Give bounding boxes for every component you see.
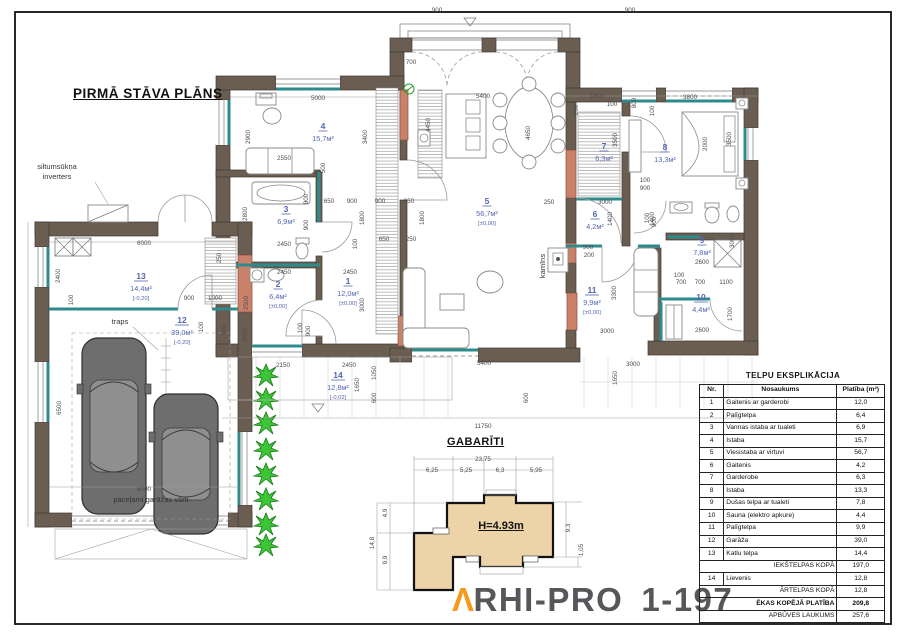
room-explication: TELPU EKSPLIKĀCIJA Nr. Nosaukums Platība… <box>699 371 887 623</box>
table-row: ĀRTELPAS KOPĀ12,8 <box>700 585 885 598</box>
table-row: 2Palīgtelpa6,4 <box>700 410 885 423</box>
dimension-label: 4450 <box>425 118 432 133</box>
gabariti-dimension: 5,25 <box>460 467 473 474</box>
room-area-cell: 39,0 <box>837 535 885 548</box>
bushes <box>254 364 278 556</box>
dimension-label: 100 <box>640 177 651 184</box>
dimension-label: 5000 <box>311 95 326 102</box>
table-row: 7Garderobe6,3 <box>700 472 885 485</box>
heat-pump-symbol <box>88 182 128 222</box>
room-number: 1 <box>346 276 351 286</box>
dimension-label: 3500 <box>612 133 619 148</box>
dimension-label: 11750 <box>474 423 492 430</box>
room-elevation: [±0,00] <box>478 221 496 227</box>
summary-label: IEKŠTELPAS KOPĀ <box>700 560 837 573</box>
room-nr-cell: 8 <box>700 485 724 498</box>
room-number: 12 <box>177 315 187 325</box>
dimension-label: 1400 <box>607 212 614 227</box>
dimension-label: 200 <box>584 252 595 259</box>
dimension-label: 600 <box>523 392 530 403</box>
table-row: 8Istaba13,3 <box>700 485 885 498</box>
dimension-label: 1650 <box>612 371 619 386</box>
room-area-cell: 56,7 <box>837 447 885 460</box>
table-row: 5Viesistaba ar virtuvi56,7 <box>700 447 885 460</box>
room-nr-cell: 13 <box>700 548 724 561</box>
dimension-label: 2500 <box>242 328 249 343</box>
dimension-label: 100 <box>607 101 618 108</box>
room-name-cell: Vannas istaba ar tualeti <box>724 422 837 435</box>
room-number: 7 <box>602 141 607 151</box>
dimension-label: 700 <box>676 279 687 286</box>
dimension-label: 5400 <box>477 360 492 367</box>
dimension-label: 5400 <box>476 93 491 100</box>
gabariti-dimension: 4,9 <box>382 508 389 517</box>
armchair <box>477 271 503 293</box>
dimension-label: 100 <box>297 322 304 333</box>
room-elevation: [-0,20] <box>133 296 150 302</box>
plan-title: PIRMĀ STĀVA PLĀNS <box>73 86 223 101</box>
room-area-cell: 6,3 <box>837 472 885 485</box>
dimension-label: 250 <box>406 236 417 243</box>
gabariti-title: GABARĪTI <box>447 436 504 448</box>
dimension-label: 2450 <box>277 269 292 276</box>
room-name-cell: Istaba <box>724 435 837 448</box>
toilet <box>296 243 308 259</box>
dimension-label: 600 <box>371 392 378 403</box>
dimension-label: 700 <box>695 279 706 286</box>
table-row: 13Katlu telpa14,4 <box>700 548 885 561</box>
dimension-label: 250 <box>544 199 555 206</box>
room-area: 9,9м² <box>583 298 601 307</box>
annotation-label: paceļami garāžas vārti <box>113 495 188 504</box>
room-area: 13,3м² <box>654 155 676 164</box>
room-area: 4,2м² <box>586 222 604 231</box>
room-elevation: [-0,20] <box>174 340 191 346</box>
room-area-cell: 9,9 <box>837 523 885 536</box>
table-row: 3Vannas istaba ar tualeti6,9 <box>700 422 885 435</box>
room-name-cell: Palīgtelpa <box>724 410 837 423</box>
wardrobe <box>629 120 641 172</box>
dimension-label: 1050 <box>371 366 378 381</box>
room-area-cell: 12,8 <box>837 573 885 586</box>
summary-value: 12,8 <box>837 585 885 598</box>
room-area-cell: 12,0 <box>837 397 885 410</box>
room-number: 9 <box>700 235 705 245</box>
gabariti-dimension: 9,9 <box>382 555 389 564</box>
table-row: IEKŠTELPAS KOPĀ197,0 <box>700 560 885 573</box>
terrace-steps <box>400 18 570 38</box>
dimension-label: 500 <box>320 162 327 173</box>
room-number: 14 <box>333 370 343 380</box>
arhi-pro-logo: Λ RHI-PRO 1-197 <box>452 581 733 619</box>
room-area: 6,4м² <box>269 292 287 301</box>
bidet <box>727 206 739 222</box>
room-nr-cell: 10 <box>700 510 724 523</box>
summary-label: ĀRTELPAS KOPĀ <box>700 585 837 598</box>
room-name-cell: Istaba <box>724 485 837 498</box>
dimension-label: 250 <box>216 252 223 263</box>
dimension-label: 1700 <box>727 307 734 322</box>
logo-text: RHI-PRO <box>474 581 624 619</box>
table-header-row: Nr. Nosaukums Platība (m²) <box>700 385 885 398</box>
room-number: 11 <box>588 285 597 295</box>
dimension-label: 100 <box>674 272 685 279</box>
room-area: 15,7м² <box>312 134 334 143</box>
room-area-cell: 4,2 <box>837 460 885 473</box>
room-area: 56,7м² <box>476 209 498 218</box>
room-name-cell: Gaitenis <box>724 460 837 473</box>
room-name-cell: Palīgtelpa <box>724 523 837 536</box>
drawing-sheet: 9009007005000180010038002502900255034004… <box>0 0 900 636</box>
room-nr-cell: 5 <box>700 447 724 460</box>
dimension-label: 900 <box>432 7 443 14</box>
gabariti-dimension: 9,3 <box>565 523 572 532</box>
dimension-label: 3400 <box>362 130 369 145</box>
table-row: 1Gaitenis ar garderobi12,0 <box>700 397 885 410</box>
dimension-label: 900 <box>305 325 312 336</box>
room-area: 7,8м² <box>693 248 711 257</box>
room-number: 3 <box>284 204 289 214</box>
room-area: 39,0м² <box>171 328 193 337</box>
dimension-label: 2000 <box>702 137 709 152</box>
room-name-cell: Dušas telpa ar tualeti <box>724 497 837 510</box>
dimension-label: 2400 <box>55 269 62 284</box>
annotation-label: siltumsūkņa <box>37 162 77 171</box>
room-number: 10 <box>696 292 706 302</box>
toilet <box>705 207 719 223</box>
dimension-label: 900 <box>303 193 310 204</box>
building-height-label: H=4.93m <box>458 520 544 532</box>
room-area: 6,9м² <box>277 217 295 226</box>
gabariti-dimension: 23,75 <box>475 456 491 463</box>
dimension-label: 3000 <box>359 298 366 313</box>
room-number: 6 <box>593 209 598 219</box>
summary-label: APBŪVES LAUKUMS <box>700 610 837 623</box>
annotation-label: inverters <box>43 172 72 181</box>
dimension-label: 2900 <box>245 130 252 145</box>
dimension-label: 650 <box>379 236 390 243</box>
room-nr-cell: 7 <box>700 472 724 485</box>
room-nr-cell: 4 <box>700 435 724 448</box>
dimension-label: 3000 <box>626 361 641 368</box>
table-row: 10Sauna (elektro apkure)4,4 <box>700 510 885 523</box>
dimension-label: 2600 <box>695 327 710 334</box>
dimension-label: 3500 <box>726 132 733 147</box>
dimension-label: 2450 <box>277 241 292 248</box>
dimension-label: 3000 <box>729 234 736 249</box>
chair <box>263 108 281 124</box>
dimension-label: 100 <box>68 294 75 305</box>
dimension-label: 900 <box>303 219 310 230</box>
room-area: 12,0м² <box>337 289 359 298</box>
gabariti-dimension: 1,05 <box>578 543 585 556</box>
dimension-label: 2500 <box>243 296 250 311</box>
dimension-label: 100 <box>198 321 205 332</box>
dimension-label: 1800 <box>359 211 366 226</box>
table-row: 4Istaba15,7 <box>700 435 885 448</box>
dimension-label: 1100 <box>719 279 733 286</box>
explication-table: Nr. Nosaukums Platība (m²) 1Gaitenis ar … <box>699 384 885 623</box>
header-area: Platība (m²) <box>837 385 885 398</box>
dimension-label: 100 <box>649 105 656 116</box>
room-elevation: [±0,00] <box>269 304 287 310</box>
gabariti-dimension: 5,95 <box>530 467 543 474</box>
table-row: APBŪVES LAUKUMS257,6 <box>700 610 885 623</box>
room-nr-cell: 3 <box>700 422 724 435</box>
dimension-label: 800 <box>631 97 638 108</box>
room-elevation: [±0,00] <box>583 310 601 316</box>
dimension-label: 650 <box>324 198 335 205</box>
room-name-cell: Sauna (elektro apkure) <box>724 510 837 523</box>
dimension-label: 3800 <box>683 94 698 101</box>
room-area-cell: 4,4 <box>837 510 885 523</box>
room-number: 4 <box>321 121 326 131</box>
room-area-cell: 7,8 <box>837 497 885 510</box>
dimension-label: 1800 <box>590 93 605 100</box>
dimension-label: 2150 <box>276 362 291 369</box>
dimension-label: 2800 <box>242 207 249 222</box>
room-area-cell: 13,3 <box>837 485 885 498</box>
room-number: 13 <box>136 271 146 281</box>
room-area: 12,8м² <box>327 383 349 392</box>
gabariti-dimension: 6,3 <box>496 467 505 474</box>
dimension-label: 3300 <box>611 286 618 301</box>
summary-value: 197,0 <box>837 560 885 573</box>
dimension-label: 2600 <box>695 259 710 266</box>
dimension-label: 900 <box>375 198 386 205</box>
dimension-label: 2550 <box>277 155 292 162</box>
dimension-label: 900 <box>221 324 228 335</box>
annotation-label: traps <box>112 317 129 326</box>
dimension-label: 100 <box>352 238 359 249</box>
room-area-cell: 15,7 <box>837 435 885 448</box>
room-area-cell: 6,4 <box>837 410 885 423</box>
room-area: 6,3м² <box>595 154 613 163</box>
room-nr-cell: 1 <box>700 397 724 410</box>
room-name-cell: Gaitenis ar garderobi <box>724 397 837 410</box>
dimension-label: 4650 <box>525 126 532 141</box>
gabariti-dimension: 14,8 <box>369 536 376 549</box>
header-nr: Nr. <box>700 385 724 398</box>
dimension-label: 2450 <box>342 362 357 369</box>
coffee-table <box>440 294 464 310</box>
room-name-cell: Garderobe <box>724 472 837 485</box>
dimension-label: 6000 <box>137 486 152 493</box>
room-nr-cell: 6 <box>700 460 724 473</box>
table-row: 11Palīgtelpa9,9 <box>700 523 885 536</box>
room-name-cell: Viesistaba ar virtuvi <box>724 447 837 460</box>
summary-value: 209,8 <box>837 598 885 611</box>
dining-table <box>505 87 553 159</box>
car-right <box>149 394 223 534</box>
room-area: 14,4м² <box>130 284 152 293</box>
room-name-cell: Garāža <box>724 535 837 548</box>
dimension-label: 6500 <box>56 401 63 416</box>
driveway <box>55 529 247 559</box>
dimension-label: 900 <box>184 295 195 302</box>
gabariti-dimension: 6,25 <box>426 467 439 474</box>
summary-label: ĒKAS KOPĒJĀ PLATĪBA <box>700 598 837 611</box>
summary-value: 257,6 <box>837 610 885 623</box>
room-nr-cell: 14 <box>700 573 724 586</box>
room-nr-cell: 11 <box>700 523 724 536</box>
dimension-label: 2450 <box>343 269 358 276</box>
dimension-label: 1000 <box>208 295 223 302</box>
room-nr-cell: 9 <box>700 497 724 510</box>
dimension-label: 650 <box>404 198 415 205</box>
dimension-label: 900 <box>651 216 658 227</box>
table-title: TELPU EKSPLIKĀCIJA <box>699 371 887 380</box>
dimension-label: 900 <box>347 198 358 205</box>
table-row: 14Lievenis12,8 <box>700 573 885 586</box>
header-name: Nosaukums <box>724 385 837 398</box>
table-row: 12Garāža39,0 <box>700 535 885 548</box>
room-area-cell: 6,9 <box>837 422 885 435</box>
dimension-label: 3000 <box>598 199 613 206</box>
dimension-label: 6000 <box>137 240 152 247</box>
table-row: ĒKAS KOPĒJĀ PLATĪBA209,8 <box>700 598 885 611</box>
room-elevation: [-0,02] <box>330 395 347 401</box>
room-number: 8 <box>663 142 668 152</box>
dimension-label: 900 <box>640 185 651 192</box>
room-area-cell: 14,4 <box>837 548 885 561</box>
dimension-label: 1800 <box>419 211 426 226</box>
logo-lambda-icon: Λ <box>452 581 476 619</box>
dimension-label: 900 <box>625 7 636 14</box>
annotation-label: kamīns <box>538 254 547 278</box>
room-area: 4,4м² <box>692 305 710 314</box>
room-elevation: [±0,00] <box>339 301 357 307</box>
dimension-label: 700 <box>406 59 417 66</box>
dimension-label: 100 <box>644 212 651 223</box>
dimension-label: 1650 <box>354 378 361 393</box>
room-number: 2 <box>276 279 281 289</box>
room-nr-cell: 2 <box>700 410 724 423</box>
couch <box>634 248 658 316</box>
room-nr-cell: 12 <box>700 535 724 548</box>
dimension-label: 250 <box>573 104 580 115</box>
room-number: 5 <box>485 196 490 206</box>
dimension-label: 900 <box>583 244 594 251</box>
room-name-cell: Katlu telpa <box>724 548 837 561</box>
room-name-cell: Lievenis <box>724 573 837 586</box>
desk <box>256 93 276 105</box>
table-row: 6Gaitenis4,2 <box>700 460 885 473</box>
table-row: 9Dušas telpa ar tualeti7,8 <box>700 497 885 510</box>
dimension-label: 3000 <box>600 328 615 335</box>
